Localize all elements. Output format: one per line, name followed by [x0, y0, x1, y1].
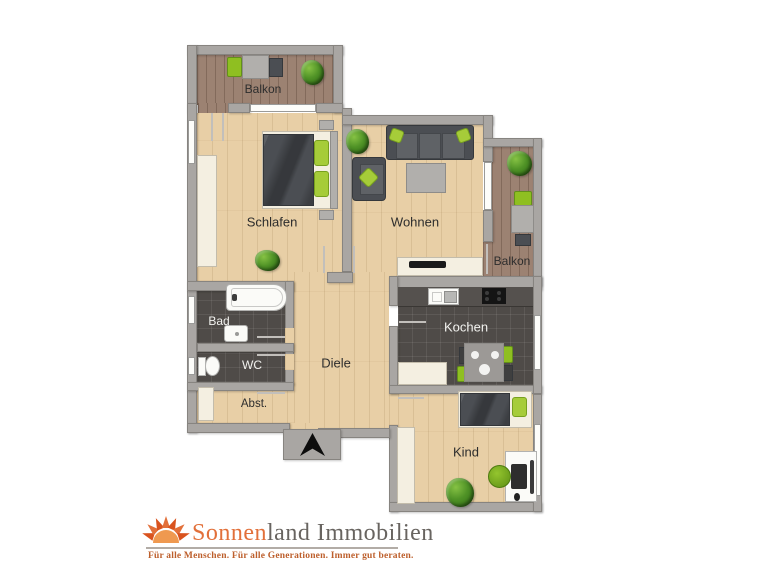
plant-icon [346, 129, 369, 154]
balcony-chair-icon [514, 191, 532, 206]
door-swing [211, 113, 213, 141]
balcony-chair-icon [269, 58, 283, 77]
decor-icon [479, 364, 490, 375]
wardrobe-icon [397, 427, 415, 504]
sofa-icon [386, 125, 474, 160]
bathtub-icon [226, 284, 287, 311]
basin-drain [235, 332, 239, 336]
window [188, 357, 195, 375]
room-label-kind: Kind [453, 445, 479, 460]
wardrobe-icon [197, 155, 217, 267]
wall [228, 103, 250, 113]
sink-basin [444, 291, 457, 303]
keyboard-icon [511, 464, 527, 489]
brand-tagline: Für alle Menschen. Für alle Generationen… [148, 551, 414, 561]
plant-icon [301, 60, 324, 85]
plate-icon [491, 351, 499, 359]
monitor-icon [530, 460, 534, 494]
door-swing [222, 113, 224, 141]
room-label-wohnen: Wohnen [391, 215, 439, 230]
room-label-abst: Abst. [241, 398, 267, 410]
window [188, 120, 195, 164]
wall [316, 103, 343, 113]
door-swing [353, 246, 355, 273]
plate-icon [471, 351, 479, 359]
pillow-icon [314, 140, 329, 166]
wall [342, 115, 493, 125]
wall [187, 45, 343, 55]
door-swing [257, 354, 285, 356]
window [250, 104, 316, 112]
floorplan-image: Balkon Schlafen Wohnen Balkon Bad WC Abs… [0, 0, 768, 567]
wall [327, 272, 353, 283]
room-label-wc: WC [242, 358, 262, 372]
balcony-chair-icon [515, 234, 531, 246]
nightstand-icon [319, 120, 334, 130]
room-label-schlafen: Schlafen [247, 215, 298, 230]
window [534, 315, 541, 370]
coffee-table-icon [406, 163, 446, 193]
duvet-icon [460, 393, 510, 426]
room-label-balkon-right: Balkon [494, 254, 531, 268]
wc-doorway-floor [285, 354, 294, 370]
sink-drainer [432, 292, 442, 302]
window [188, 296, 195, 324]
toilet-bowl [205, 356, 220, 376]
burner [485, 291, 489, 295]
room-diele-floor [294, 272, 389, 432]
wall [197, 343, 294, 352]
brand-name: Sonnenland Immobilien [192, 520, 434, 547]
room-label-bad: Bad [208, 314, 229, 328]
armchair-icon [352, 157, 386, 201]
door-swing [486, 244, 488, 274]
door-swing [323, 246, 325, 273]
pillow-icon [512, 397, 527, 417]
wall [483, 210, 493, 242]
kind-doorway-floor [389, 394, 398, 425]
wall [187, 423, 290, 433]
brand-name-part2: land Immobilien [267, 520, 434, 546]
plant-icon [446, 478, 474, 507]
kitchen-sink-icon [428, 288, 459, 305]
duvet-icon [263, 134, 314, 206]
room-label-kochen: Kochen [444, 320, 488, 335]
wall [389, 326, 398, 394]
stool-icon [488, 465, 511, 488]
brand-name-part1: Sonnen [192, 520, 267, 546]
wall [533, 138, 542, 286]
pillow-icon [314, 171, 329, 197]
door-swing [399, 321, 426, 323]
sofa-cushion [419, 133, 441, 159]
door-swing [257, 392, 285, 394]
kitchen-counter-low-icon [398, 362, 447, 385]
window [484, 162, 492, 210]
stove-icon [482, 288, 506, 304]
door-swing [398, 397, 424, 399]
cabinet-icon [198, 387, 214, 421]
burner [497, 297, 501, 301]
faucet-icon [232, 294, 237, 301]
kitchen-counter-icon [398, 287, 533, 307]
door-swing [257, 336, 285, 338]
sun-logo-icon [140, 514, 192, 548]
balcony-chair-icon [227, 57, 242, 77]
burner [497, 291, 501, 295]
headboard-icon [330, 131, 338, 209]
balcony-table-icon [511, 205, 534, 233]
brand-logo: Sonnenland Immobilien Für alle Menschen.… [140, 512, 440, 564]
burner [485, 297, 489, 301]
brand-divider [146, 547, 398, 549]
balkon-top-doorway-floor [198, 103, 228, 113]
room-label-diele: Diele [321, 356, 351, 371]
mouse-icon [514, 493, 520, 501]
plant-icon [507, 151, 532, 176]
balcony-table-icon [242, 55, 269, 79]
room-label-balkon-top: Balkon [245, 82, 282, 96]
nightstand-icon [319, 210, 334, 220]
balkon-right-doorway-floor [483, 242, 493, 276]
bathtub-inner [231, 288, 283, 307]
tv-icon [409, 261, 446, 268]
wall [389, 276, 398, 306]
plant-icon [255, 250, 280, 271]
dining-table-icon [464, 343, 504, 382]
